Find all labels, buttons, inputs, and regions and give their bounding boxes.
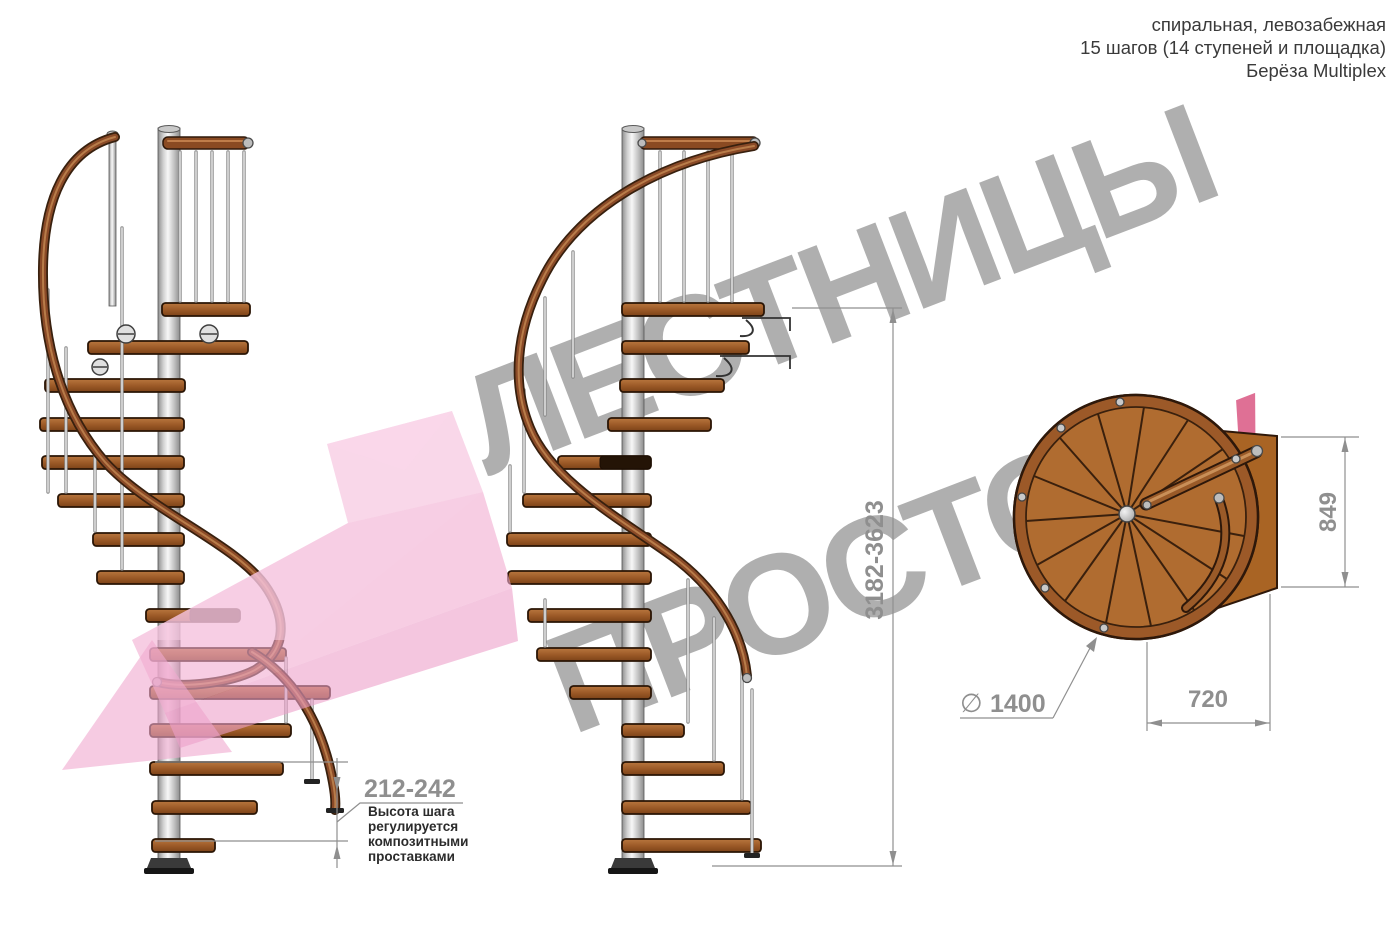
header-line3: Берёза Multiplex bbox=[1246, 60, 1387, 81]
top-view-plan bbox=[1014, 395, 1277, 639]
pole-base bbox=[608, 858, 658, 874]
drawing-canvas: ЛЕСТНИЦЫ ПРОСТО.ру bbox=[0, 0, 1400, 940]
note-line4: проставками bbox=[368, 849, 455, 864]
dim-diameter: ∅ 1400 bbox=[960, 637, 1097, 719]
pole-top-cap bbox=[158, 126, 180, 133]
note-line3: композитными bbox=[368, 834, 468, 849]
middle-staircase-side-view bbox=[507, 126, 790, 875]
dim-tread-span-label: 720 bbox=[1188, 686, 1228, 713]
pole-hub bbox=[1119, 506, 1135, 522]
dim-step-height-label: 212-242 bbox=[364, 775, 456, 803]
header-line1: спиральная, левозабежная bbox=[1152, 14, 1386, 35]
diameter-icon: ∅ bbox=[960, 689, 983, 719]
top-rail-bar bbox=[163, 137, 249, 149]
note-line1: Высота шага bbox=[368, 804, 455, 819]
staircase-drawing: ЛЕСТНИЦЫ ПРОСТО.ру bbox=[0, 0, 1400, 940]
pole-top-cap bbox=[622, 126, 644, 133]
dim-diameter-label: 1400 bbox=[990, 690, 1046, 718]
dim-total-height-label: 3182-3623 bbox=[861, 500, 889, 620]
rail-post bbox=[109, 134, 116, 306]
note-line2: регулируется bbox=[368, 819, 458, 834]
dim-landing-depth-label: 849 bbox=[1315, 492, 1342, 532]
pole-base bbox=[144, 858, 194, 874]
dim-landing-depth: 849 bbox=[1281, 437, 1359, 587]
rail-bar-cap bbox=[243, 138, 253, 148]
header: спиральная, левозабежная 15 шагов (14 ст… bbox=[1080, 14, 1387, 81]
header-line2: 15 шагов (14 ступеней и площадка) bbox=[1080, 37, 1386, 58]
